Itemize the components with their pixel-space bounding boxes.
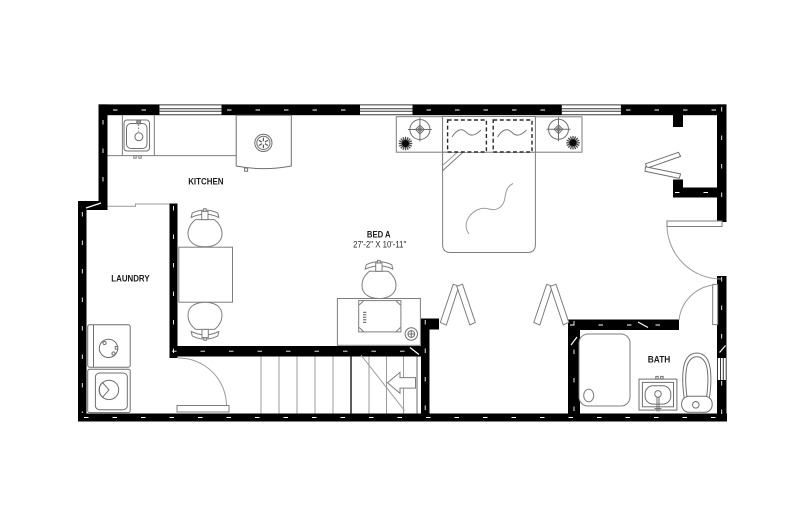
svg-text:KITCHEN: KITCHEN (188, 177, 223, 188)
svg-text:27'-2" X 10'-11": 27'-2" X 10'-11" (353, 238, 406, 249)
svg-text:BATH: BATH (648, 354, 671, 365)
svg-text:LAUNDRY: LAUNDRY (111, 273, 150, 284)
